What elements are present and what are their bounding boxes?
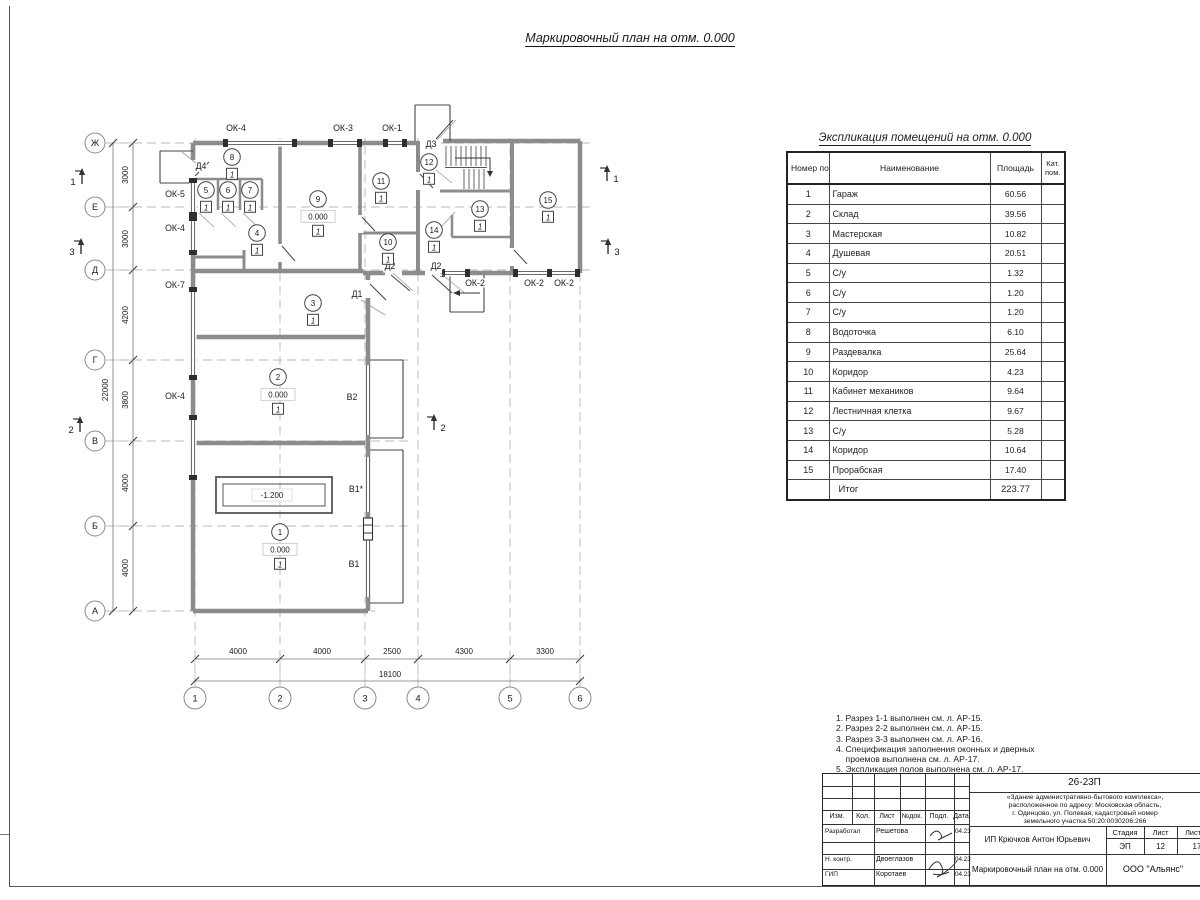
room-number: 13 <box>787 421 829 441</box>
section-number: 1 <box>613 174 618 185</box>
axis-label-v: 6 <box>577 694 582 705</box>
col-header-area: Площадь <box>990 152 1041 184</box>
floor-type-number: 1 <box>230 170 234 179</box>
opening-label: ОК-4 <box>226 123 246 133</box>
schedule-row: 13 С/у 5.28 <box>787 421 1065 441</box>
tb-col-header: №док. <box>898 813 926 820</box>
opening-label: ОК-2 <box>554 278 574 288</box>
room-category <box>1041 460 1065 480</box>
note-line: 4. Спецификация заполнения оконных и две… <box>836 744 1035 754</box>
title-block-line <box>823 786 969 787</box>
leader-line <box>437 120 456 140</box>
schedule-row: 3 Мастерская 10.82 <box>787 224 1065 244</box>
room-number: 4 <box>787 244 829 264</box>
schedule-row: 9 Раздевалка 25.64 <box>787 342 1065 362</box>
opening-label: ОК-4 <box>165 223 185 233</box>
window-gap <box>190 221 197 250</box>
opening-label: В2 <box>347 392 358 402</box>
floor-type-number: 1 <box>316 227 320 236</box>
room-category <box>1041 401 1065 421</box>
room-area: 6.10 <box>990 322 1041 342</box>
room-schedule: Экспликация помещений на отм. 0.000 Номе… <box>786 132 1064 501</box>
opening-label: Д4 <box>196 161 207 171</box>
window-pier <box>465 269 470 277</box>
title-block-line <box>969 854 1200 855</box>
room-category <box>1041 421 1065 441</box>
window-gap <box>445 270 465 277</box>
title-block: 26-23П «Здание административно-бытового … <box>822 773 1200 886</box>
room-area: 1.20 <box>990 303 1041 323</box>
gate-post <box>364 518 373 540</box>
tb-col-header: Лист <box>873 813 901 820</box>
note-line: 3. Разрез 3-3 выполнен см. л. АР-16. <box>836 734 1035 744</box>
leader-line <box>436 170 452 183</box>
title-block-line <box>1144 826 1145 854</box>
room-marker-number: 6 <box>226 186 231 195</box>
window-gap <box>388 140 402 147</box>
room-area: 5.28 <box>990 421 1041 441</box>
opening-label: Д1 <box>352 289 363 299</box>
drawing-title-text: Маркировочный план на отм. 0.000 <box>525 31 734 47</box>
room-number: 5 <box>787 263 829 283</box>
opening-label: ОК-3 <box>333 123 353 133</box>
opening-label: ОК-1 <box>382 123 402 133</box>
elevation-value: 0.000 <box>268 390 288 399</box>
axis-label-v: 5 <box>507 694 512 705</box>
room-category <box>1041 362 1065 382</box>
room-category <box>1041 224 1065 244</box>
room-number: 10 <box>787 362 829 382</box>
room-marker-number: 5 <box>204 186 209 195</box>
title-block-line <box>1106 838 1200 839</box>
window-pier <box>189 287 197 292</box>
room-marker-number: 11 <box>377 177 386 186</box>
room-name: Коридор <box>829 362 990 382</box>
tb-person: Н. контр. <box>825 856 873 863</box>
opening-label: Д2 <box>431 261 442 271</box>
window-pier <box>547 269 552 277</box>
room-name: Лестничная клетка <box>829 401 990 421</box>
room-category <box>1041 263 1065 283</box>
door-leaf <box>432 275 452 293</box>
dim-text-h-total: 18100 <box>379 670 402 679</box>
tb-col-header: Дата <box>947 813 975 820</box>
room-area: 39.56 <box>990 204 1041 224</box>
room-area: 9.67 <box>990 401 1041 421</box>
tb-col-header: Изм. <box>823 813 851 820</box>
schedule-row: 14 Коридор 10.64 <box>787 440 1065 460</box>
axis-label-v: 2 <box>277 694 282 705</box>
axis-label-h: А <box>92 606 98 616</box>
room-number: 12 <box>787 401 829 421</box>
room-category <box>1041 440 1065 460</box>
room-name: Кабинет механиков <box>829 381 990 401</box>
dim-text-v: 4000 <box>121 559 130 577</box>
room-category <box>1041 244 1065 264</box>
floor-type-number: 1 <box>226 203 230 212</box>
dim-text-v: 3000 <box>121 166 130 184</box>
col-header-number: Номер помещ. <box>787 152 829 184</box>
window-pier <box>513 269 518 277</box>
axis-label-v: 4 <box>415 694 420 705</box>
axis-label-h: Е <box>92 202 98 212</box>
room-area: 17.40 <box>990 460 1041 480</box>
tb-person: Разработал <box>825 828 873 835</box>
room-marker-number: 14 <box>430 226 439 235</box>
title-block-line <box>823 810 969 811</box>
floor-type-number: 1 <box>546 213 550 222</box>
door-leaf <box>362 217 375 231</box>
window-pier <box>223 139 228 147</box>
axis-label-v: 1 <box>192 694 197 705</box>
dim-text-h: 3300 <box>536 647 554 656</box>
room-marker-number: 3 <box>311 299 316 308</box>
room-name: С/у <box>829 303 990 323</box>
window-pier <box>189 178 197 183</box>
floor-type-number: 1 <box>427 175 431 184</box>
opening-label: ОК-5 <box>165 189 185 199</box>
dim-text-v: 3000 <box>121 230 130 248</box>
axis-label-v: 3 <box>362 694 367 705</box>
room-marker-number: 1 <box>278 528 283 537</box>
window-gap <box>228 140 292 147</box>
title-block-line <box>969 792 1200 793</box>
room-number: 8 <box>787 322 829 342</box>
title-block-line <box>1106 826 1107 885</box>
opening-label: ОК-4 <box>165 391 185 401</box>
room-name: С/у <box>829 283 990 303</box>
schedule-table: Номер помещ. Наименование Площадь Кат. п… <box>786 151 1066 501</box>
room-name: Мастерская <box>829 224 990 244</box>
leader-line <box>199 213 214 227</box>
signature-1 <box>930 831 952 840</box>
opening-label: В1* <box>349 484 364 494</box>
room-name: Водоточка <box>829 322 990 342</box>
floor-type-number: 1 <box>248 203 252 212</box>
schedule-row: 8 Водоточка 6.10 <box>787 322 1065 342</box>
room-area: 1.32 <box>990 263 1041 283</box>
section-number: 2 <box>440 423 445 434</box>
notes-list: 1. Разрез 1-1 выполнен см. л. АР-15.2. Р… <box>836 713 1035 775</box>
window-gap <box>190 420 197 475</box>
gate-gap <box>365 365 372 435</box>
room-marker-number: 15 <box>544 196 553 205</box>
window-pier <box>189 250 197 255</box>
title-block-line <box>823 854 969 855</box>
title-block-line <box>823 798 969 799</box>
schedule-header-row: Номер помещ. Наименование Площадь Кат. п… <box>787 152 1065 184</box>
room-number: 11 <box>787 381 829 401</box>
title-block-line <box>1177 826 1178 854</box>
title-block-line <box>969 826 1200 827</box>
drawing-title: Маркировочный план на отм. 0.000 <box>400 31 860 45</box>
floor-type-number: 1 <box>432 243 436 252</box>
room-number: 3 <box>787 224 829 244</box>
schedule-row: 11 Кабинет механиков 9.64 <box>787 381 1065 401</box>
tb-person: Коротаев <box>876 871 924 878</box>
section-number: 3 <box>614 247 619 258</box>
leader-line <box>221 213 236 227</box>
dim-text-v: 3800 <box>121 391 130 409</box>
window-gap <box>190 183 197 212</box>
room-area: 60.56 <box>990 184 1041 204</box>
room-area: 10.64 <box>990 440 1041 460</box>
room-category <box>1041 322 1065 342</box>
floor-type-number: 1 <box>204 203 208 212</box>
room-marker-number: 10 <box>384 238 393 247</box>
axis-label-h: Г <box>93 355 98 365</box>
tb-person: Решетова <box>876 828 924 835</box>
stair-up-arrow <box>487 171 493 177</box>
gate-gap <box>365 540 372 597</box>
dim-text-h: 4000 <box>313 647 331 656</box>
room-name: Склад <box>829 204 990 224</box>
pit-elevation: -1.200 <box>261 491 284 500</box>
room-area: 20.51 <box>990 244 1041 264</box>
room-number: 1 <box>787 184 829 204</box>
axis-label-h: Ж <box>91 138 100 148</box>
total-label: Итог <box>829 480 990 500</box>
window-pier <box>383 139 388 147</box>
room-category <box>1041 204 1065 224</box>
opening-label: В1 <box>349 559 360 569</box>
door-leaf <box>282 246 295 261</box>
floor-type-number: 1 <box>276 405 280 414</box>
dim-text-v: 4200 <box>121 306 130 324</box>
window-pier <box>189 475 197 480</box>
title-block-line <box>823 842 969 843</box>
room-number: 15 <box>787 460 829 480</box>
room-category <box>1041 283 1065 303</box>
room-marker-number: 4 <box>255 229 260 238</box>
schedule-row: 15 Прорабская 17.40 <box>787 460 1065 480</box>
title-block-line <box>823 824 969 825</box>
room-area: 25.64 <box>990 342 1041 362</box>
section-number: 1 <box>70 177 75 188</box>
schedule-row: 6 С/у 1.20 <box>787 283 1065 303</box>
room-category <box>1041 184 1065 204</box>
room-area: 9.64 <box>990 381 1041 401</box>
schedule-row: 5 С/у 1.32 <box>787 263 1065 283</box>
col-header-name: Наименование <box>829 152 990 184</box>
window-gap <box>190 292 197 375</box>
schedule-total-row: Итог 223.77 <box>787 480 1065 500</box>
room-name: Гараж <box>829 184 990 204</box>
window-pier <box>402 139 407 147</box>
window-pier <box>189 415 197 420</box>
schedule-title: Экспликация помещений на отм. 0.000 <box>786 132 1064 144</box>
room-name: С/у <box>829 263 990 283</box>
total-area: 223.77 <box>990 480 1041 500</box>
room-category <box>1041 303 1065 323</box>
room-marker-number: 7 <box>248 186 253 195</box>
window-pier <box>575 269 580 277</box>
note-line: 1. Разрез 1-1 выполнен см. л. АР-15. <box>836 713 1035 723</box>
total-blank <box>787 480 829 500</box>
elevation-value: 0.000 <box>308 212 328 221</box>
window-gap <box>552 270 575 277</box>
window-pier <box>189 216 197 221</box>
schedule-row: 10 Коридор 4.23 <box>787 362 1065 382</box>
floor-type-number: 1 <box>278 560 282 569</box>
section-number: 2 <box>68 425 73 436</box>
schedule-row: 7 С/у 1.20 <box>787 303 1065 323</box>
tb-person: 04.23 <box>955 828 969 835</box>
axis-label-h: В <box>92 436 98 446</box>
room-number: 7 <box>787 303 829 323</box>
gate-gap <box>365 457 372 512</box>
room-name: Раздевалка <box>829 342 990 362</box>
room-category <box>1041 381 1065 401</box>
room-area: 4.23 <box>990 362 1041 382</box>
floor-type-number: 1 <box>386 255 390 264</box>
opening-label: ОК-2 <box>465 278 485 288</box>
opening-label: Д3 <box>426 139 437 149</box>
window-gap <box>518 270 547 277</box>
note-line: 2. Разрез 2-2 выполнен см. л. АР-15. <box>836 723 1035 733</box>
schedule-row: 1 Гараж 60.56 <box>787 184 1065 204</box>
room-name: Прорабская <box>829 460 990 480</box>
col-header-cat: Кат. пом. <box>1041 152 1065 184</box>
room-name: Душевая <box>829 244 990 264</box>
room-area: 10.82 <box>990 224 1041 244</box>
window-pier <box>189 375 197 380</box>
ramp-arrow-head <box>453 290 460 296</box>
tb-person: Двоеглазов <box>876 856 924 863</box>
axis-label-h: Б <box>92 521 98 531</box>
dim-text-h: 4300 <box>455 647 473 656</box>
room-name: С/у <box>829 421 990 441</box>
dim-text-h: 4000 <box>229 647 247 656</box>
schedule-row: 4 Душевая 20.51 <box>787 244 1065 264</box>
room-marker-number: 13 <box>476 205 485 214</box>
room-name: Коридор <box>829 440 990 460</box>
title-block-line <box>823 869 969 870</box>
room-number: 9 <box>787 342 829 362</box>
total-cat <box>1041 480 1065 500</box>
window-gap <box>333 140 357 147</box>
door-leaf <box>391 275 410 291</box>
room-category <box>1041 342 1065 362</box>
tb-person: 04.23 <box>955 871 969 878</box>
door-leaf <box>370 284 386 300</box>
dim-text-v: 4000 <box>121 474 130 492</box>
room-marker-number: 8 <box>230 153 235 162</box>
section-number: 3 <box>69 247 74 258</box>
schedule-row: 12 Лестничная клетка 9.67 <box>787 401 1065 421</box>
room-number: 6 <box>787 283 829 303</box>
tb-person: 04.23 <box>955 856 969 863</box>
note-line: проемов выполнена см. л. АР-17. <box>836 754 1035 764</box>
room-number: 2 <box>787 204 829 224</box>
stair-up-line <box>455 158 490 172</box>
schedule-row: 2 Склад 39.56 <box>787 204 1065 224</box>
room-marker-number: 12 <box>425 158 434 167</box>
room-marker-number: 9 <box>316 195 321 204</box>
room-number: 14 <box>787 440 829 460</box>
window-pier <box>357 139 362 147</box>
floor-type-number: 1 <box>255 246 259 255</box>
opening-label: ОК-7 <box>165 280 185 290</box>
opening-label: ОК-2 <box>524 278 544 288</box>
door-leaf <box>514 250 527 264</box>
dim-text-v-total: 22000 <box>101 378 110 401</box>
axis-label-h: Д <box>92 265 98 275</box>
room-area: 1.20 <box>990 283 1041 303</box>
floor-type-number: 1 <box>379 194 383 203</box>
leader-line <box>393 273 413 291</box>
tb-person: ГИП <box>825 871 873 878</box>
dim-text-h: 2500 <box>383 647 401 656</box>
room-marker-number: 2 <box>276 373 281 382</box>
window-pier <box>328 139 333 147</box>
elevation-value: 0.000 <box>270 545 290 554</box>
window-pier <box>292 139 297 147</box>
floor-type-number: 1 <box>478 222 482 231</box>
floor-type-number: 1 <box>311 316 315 325</box>
door-gap <box>365 280 372 298</box>
